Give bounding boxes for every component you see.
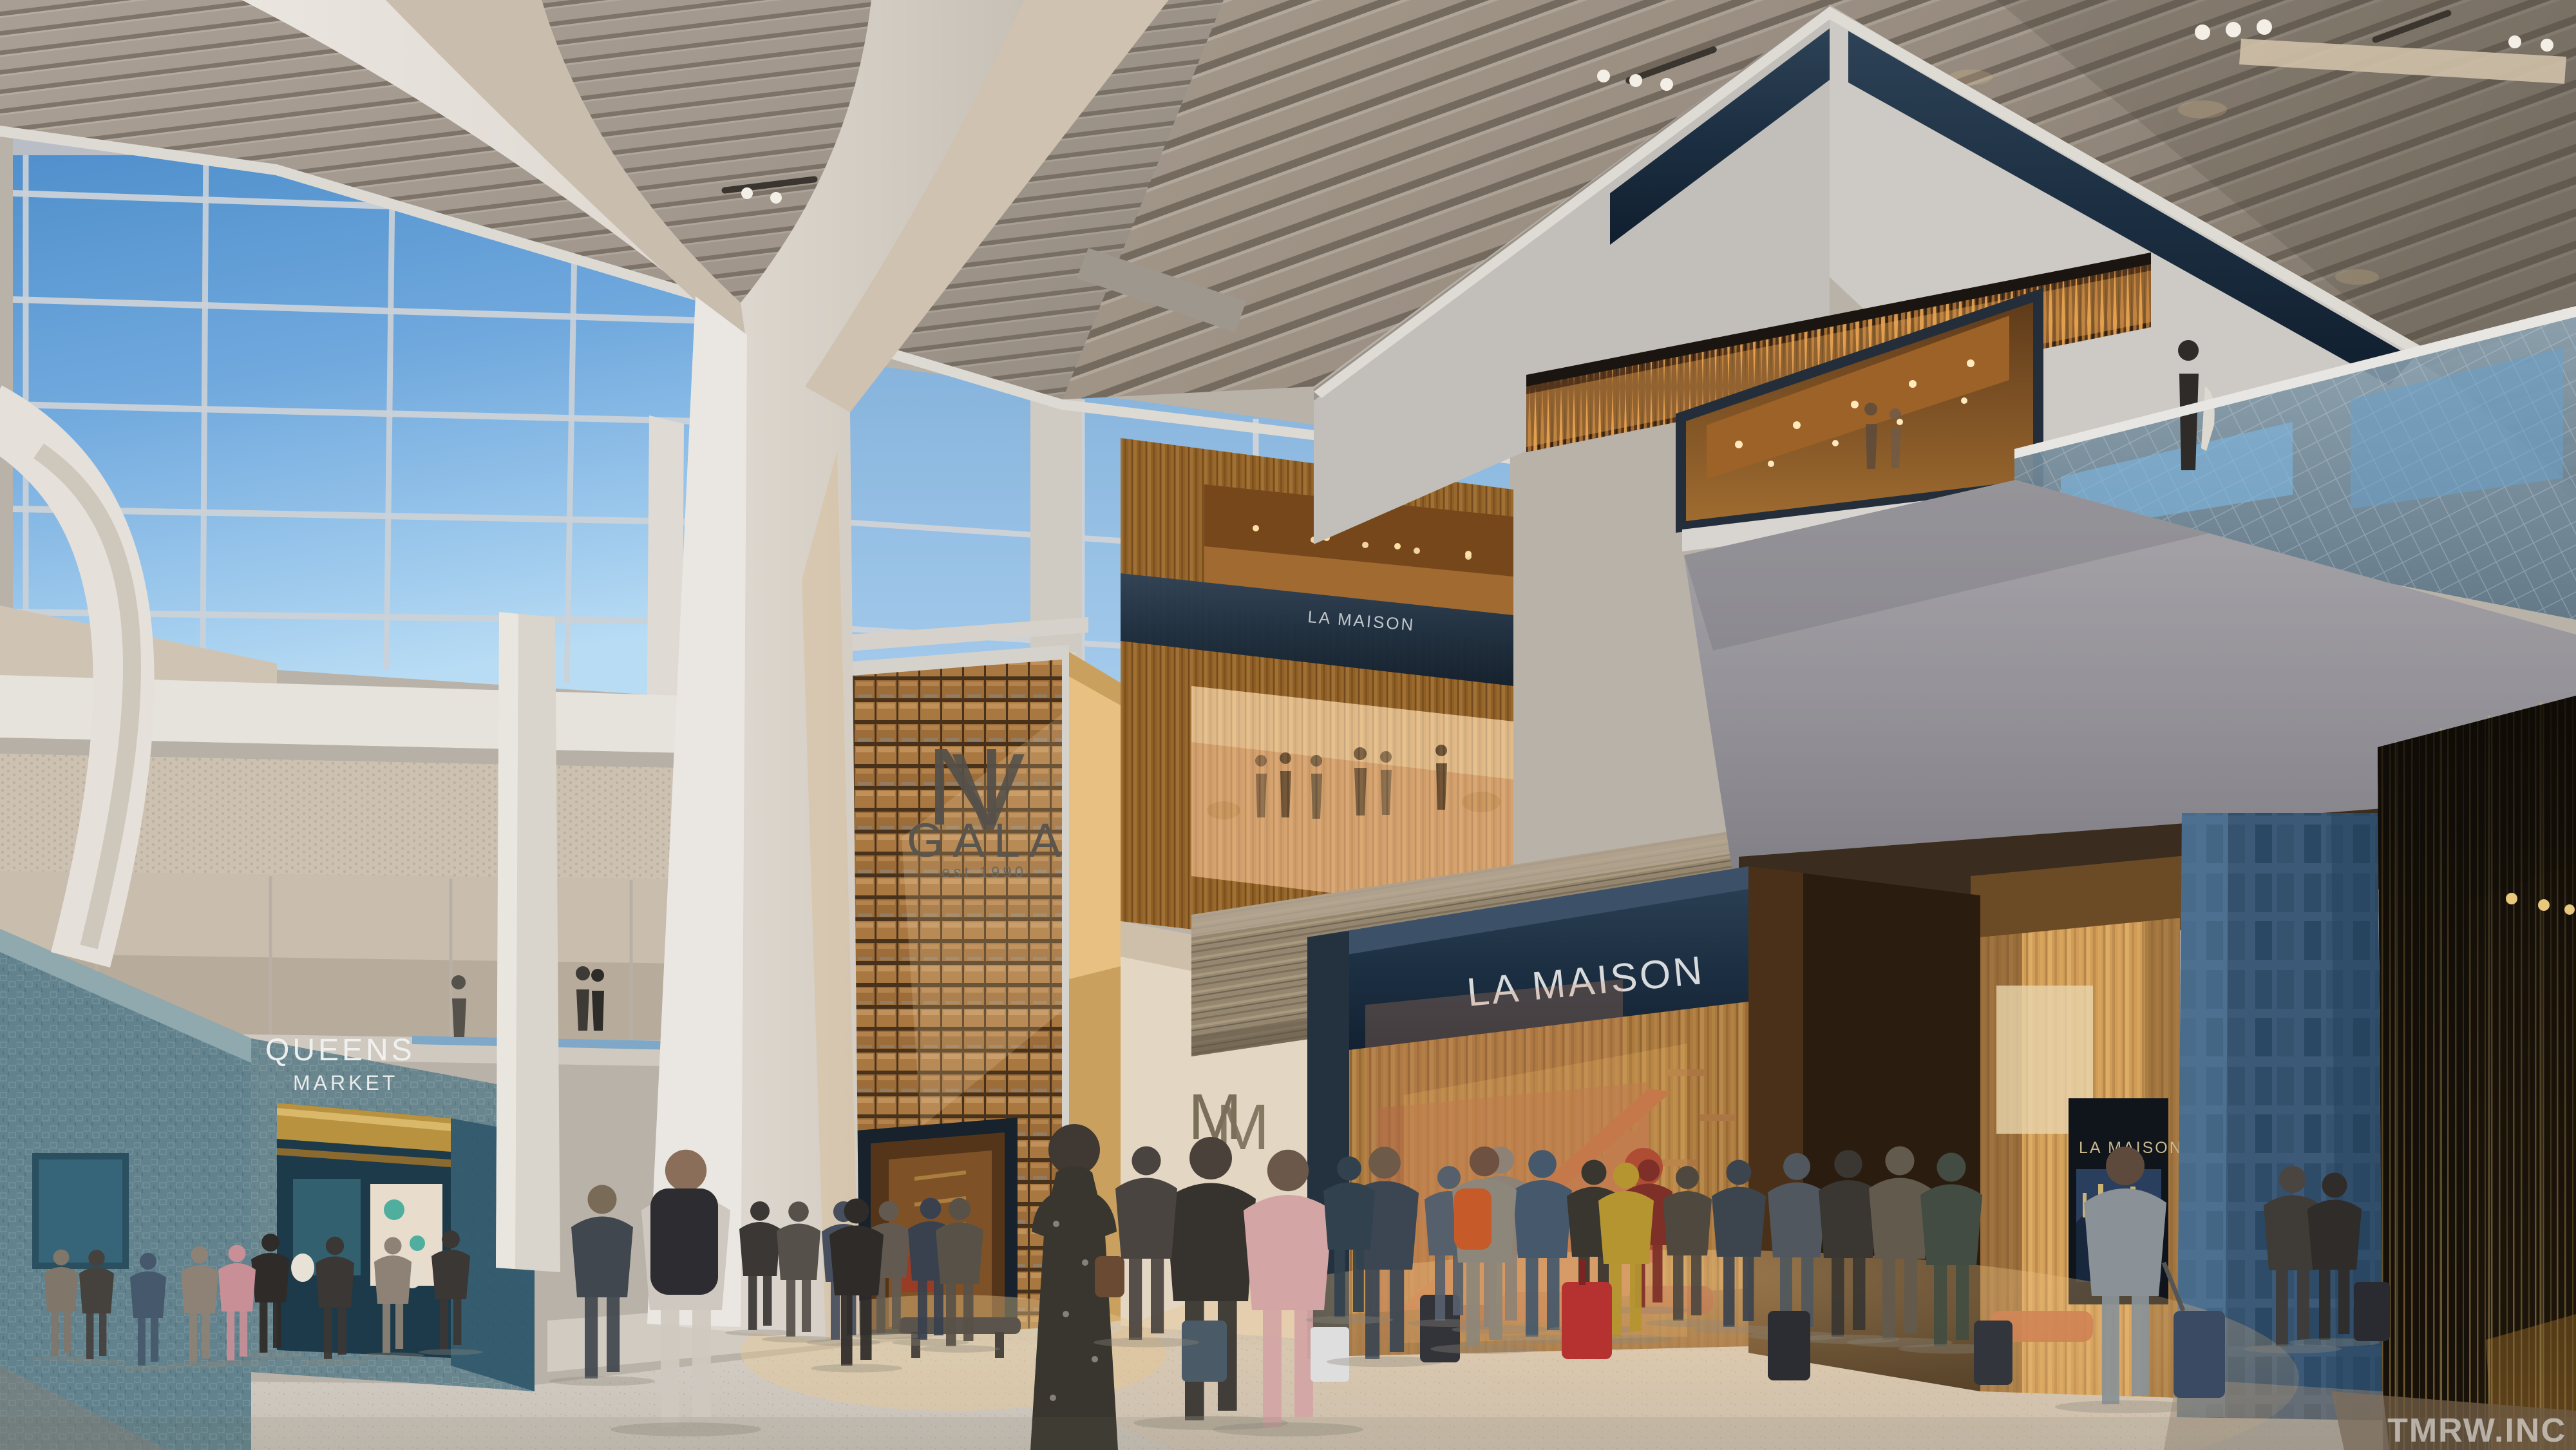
svg-text:QUEENS: QUEENS	[265, 1033, 415, 1067]
svg-text:TMRW.INC: TMRW.INC	[2387, 1412, 2566, 1449]
svg-text:GALA: GALA	[907, 814, 1070, 867]
svg-text:MARKET: MARKET	[293, 1071, 398, 1094]
svg-text:est 1990: est 1990	[942, 864, 1027, 881]
